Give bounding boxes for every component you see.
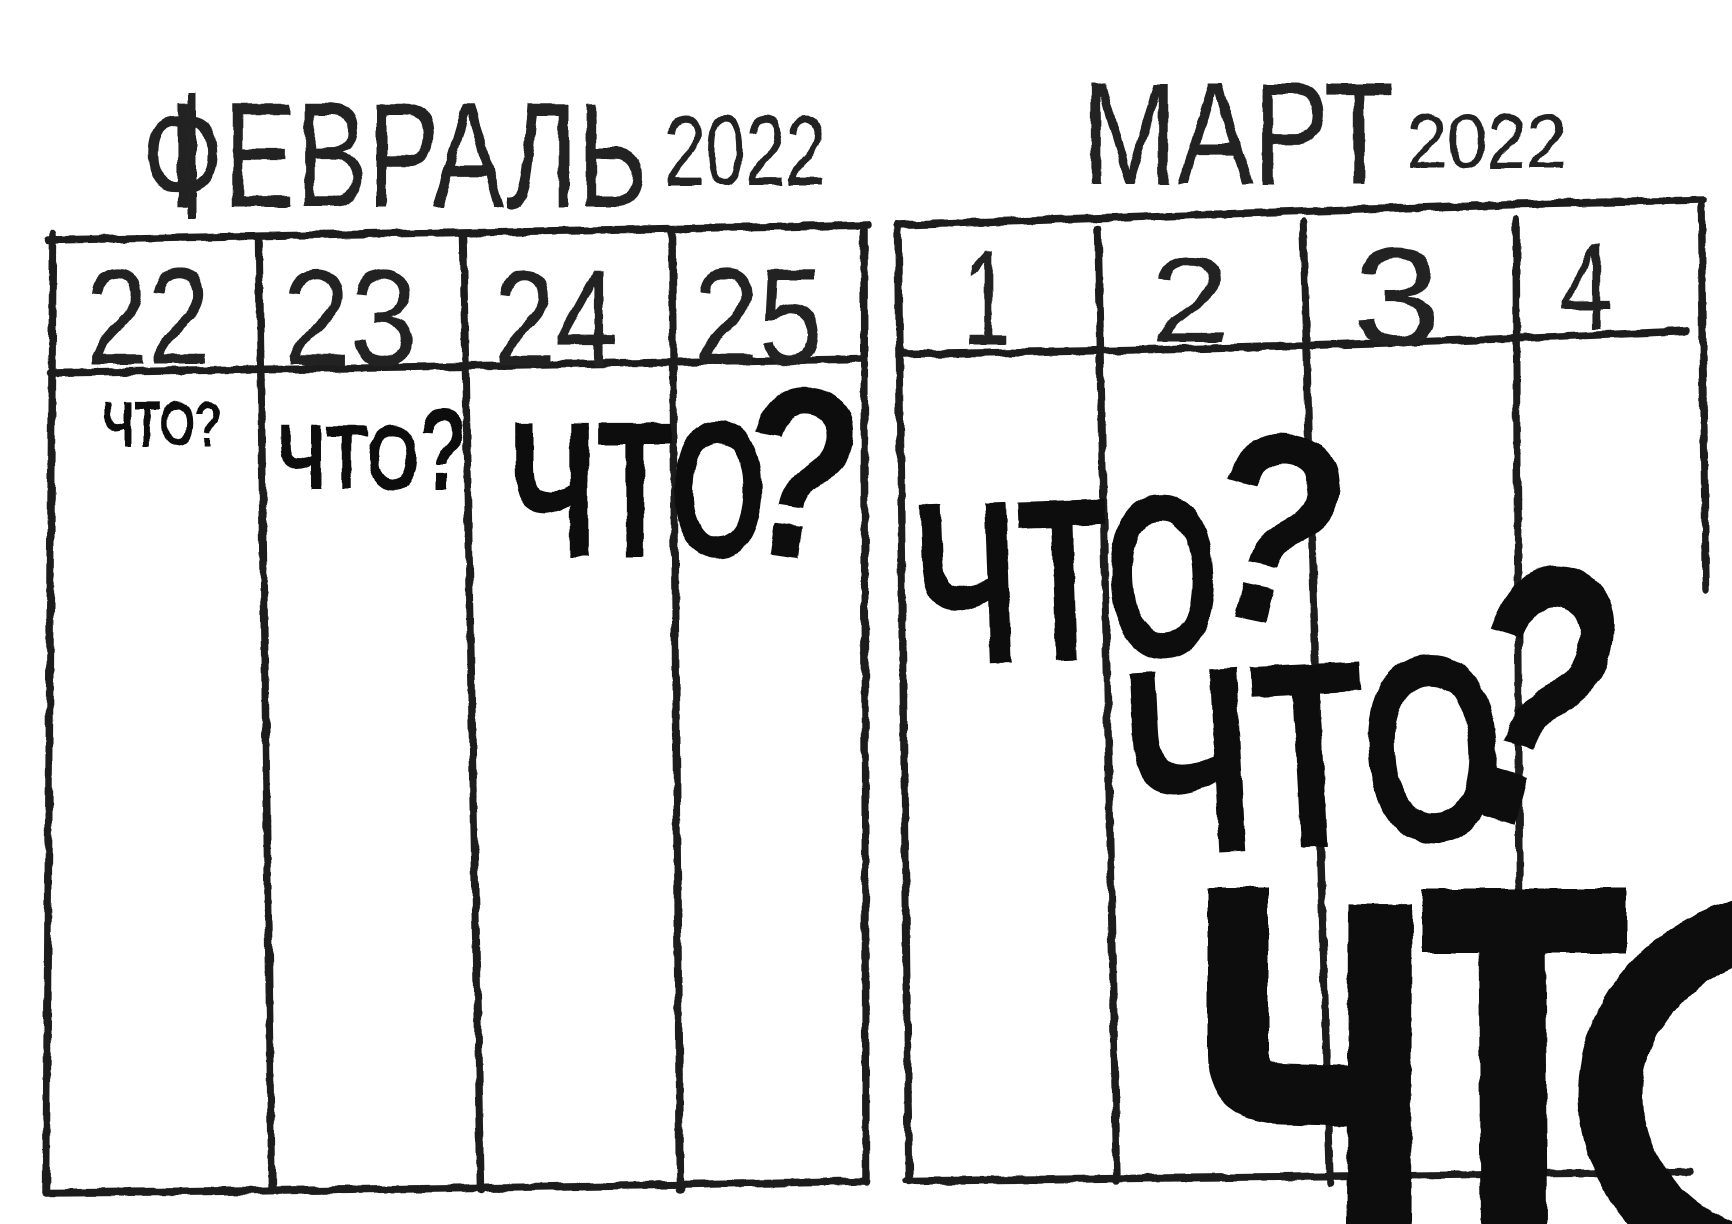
svg-text:?: ? xyxy=(418,386,468,514)
svg-text:ЧТО?: ЧТО? xyxy=(102,388,222,460)
svg-text:3: 3 xyxy=(1353,220,1441,375)
svg-text:23: 23 xyxy=(283,242,417,395)
svg-text:4: 4 xyxy=(1560,218,1612,356)
svg-text:2: 2 xyxy=(1151,232,1230,368)
svg-text:1: 1 xyxy=(963,222,1011,375)
svg-text:2022: 2022 xyxy=(1407,99,1567,185)
svg-text:МАРТ: МАРТ xyxy=(1082,52,1394,215)
svg-text:24: 24 xyxy=(494,243,617,396)
svg-text:2022: 2022 xyxy=(665,95,826,206)
svg-text:ФЕВРАЛЬ: ФЕВРАЛЬ xyxy=(142,71,648,239)
svg-text:ЧТО: ЧТО xyxy=(277,407,420,509)
svg-text:22: 22 xyxy=(86,241,210,394)
